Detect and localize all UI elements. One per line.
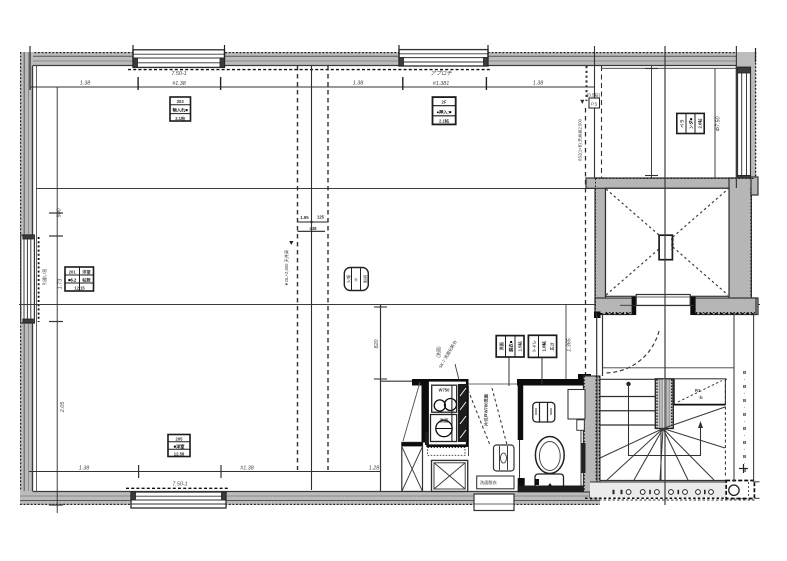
svg-text:·: · [744, 405, 746, 410]
svg-text:1.5帖: 1.5帖 [517, 340, 524, 351]
svg-text:1.365: 1.365 [567, 337, 573, 351]
svg-text:ンダ■: ンダ■ [688, 118, 695, 129]
svg-text:(洗面): (洗面) [435, 346, 442, 358]
svg-text:P.S: P.S [591, 102, 597, 107]
svg-text:1.38: 1.38 [353, 81, 364, 87]
svg-text:438: 438 [310, 226, 318, 231]
svg-text:引違い窓: 引違い窓 [41, 269, 48, 286]
svg-text:820: 820 [374, 340, 380, 349]
svg-text:1.73: 1.73 [58, 279, 64, 290]
svg-text:R: R [354, 278, 357, 283]
svg-text:1.28: 1.28 [369, 466, 380, 472]
svg-text:12.58: 12.58 [174, 452, 185, 457]
svg-text:2.1帖: 2.1帖 [175, 115, 186, 122]
svg-text:1.38: 1.38 [533, 81, 544, 87]
svg-text:·: · [744, 391, 746, 396]
svg-text:■6.2: ■6.2 [68, 278, 77, 283]
svg-text:R1: R1 [695, 388, 701, 393]
svg-text:1.0帖: 1.0帖 [541, 340, 548, 351]
svg-text:脱衣■: 脱衣■ [507, 340, 514, 351]
svg-text:1.38: 1.38 [80, 81, 91, 87]
svg-text:■洋室: ■洋室 [174, 443, 186, 450]
svg-text:片引戸W780洗面: 片引戸W780洗面 [483, 393, 490, 426]
svg-text:↑b: ↑b [698, 395, 703, 400]
svg-text:#1.38: #1.38 [240, 466, 254, 472]
svg-text:▼GL+2,500 天井高: ▼GL+2,500 天井高 [283, 250, 290, 286]
svg-text:203: 203 [177, 99, 185, 104]
svg-text:·: · [744, 433, 746, 438]
svg-text:12.15: 12.15 [74, 286, 85, 291]
svg-text:2.05: 2.05 [60, 401, 66, 413]
svg-text:#1.381: #1.381 [433, 81, 450, 87]
svg-text:#1.38: #1.38 [172, 81, 186, 87]
svg-text:(0.5帖): (0.5帖) [587, 92, 600, 99]
svg-text:洗面脱衣: 洗面脱衣 [480, 479, 498, 486]
svg-text:·: · [744, 447, 746, 452]
svg-text:洗面: 洗面 [440, 417, 449, 424]
svg-text:広さ: 広さ [549, 342, 556, 350]
svg-text:トイレ: トイレ [531, 340, 536, 353]
svg-text:·: · [744, 419, 746, 424]
svg-text:7.50-1: 7.50-1 [171, 71, 186, 77]
svg-text:Φ7.50: Φ7.50 [716, 116, 722, 131]
svg-text:帖数: 帖数 [82, 277, 91, 284]
svg-text:500: 500 [57, 209, 63, 218]
svg-text:2F: 2F [442, 100, 447, 105]
svg-text:1.38: 1.38 [79, 466, 90, 472]
svg-text:W750: W750 [439, 388, 451, 393]
svg-text:洗面: 洗面 [498, 341, 505, 350]
svg-text:アプロチ: アプロチ [430, 70, 452, 77]
svg-text:●押入:■: ●押入:■ [437, 108, 452, 115]
svg-text:201: 201 [69, 270, 77, 275]
svg-text:2.1帖: 2.1帖 [439, 118, 450, 125]
svg-text:7.50-1: 7.50-1 [172, 482, 187, 488]
svg-text:物入れ■: 物入れ■ [173, 107, 189, 114]
svg-text:0S2(1=B) 天井高2.500: 0S2(1=B) 天井高2.500 [577, 118, 584, 161]
svg-text:洋室: 洋室 [82, 269, 91, 276]
svg-text:·: · [744, 377, 746, 382]
svg-text:125: 125 [317, 215, 325, 220]
svg-text:2.6帖: 2.6帖 [697, 118, 704, 129]
svg-text:EV9人: EV9人 [670, 238, 675, 251]
svg-text:1.95: 1.95 [300, 215, 309, 220]
svg-text:205: 205 [176, 436, 184, 441]
